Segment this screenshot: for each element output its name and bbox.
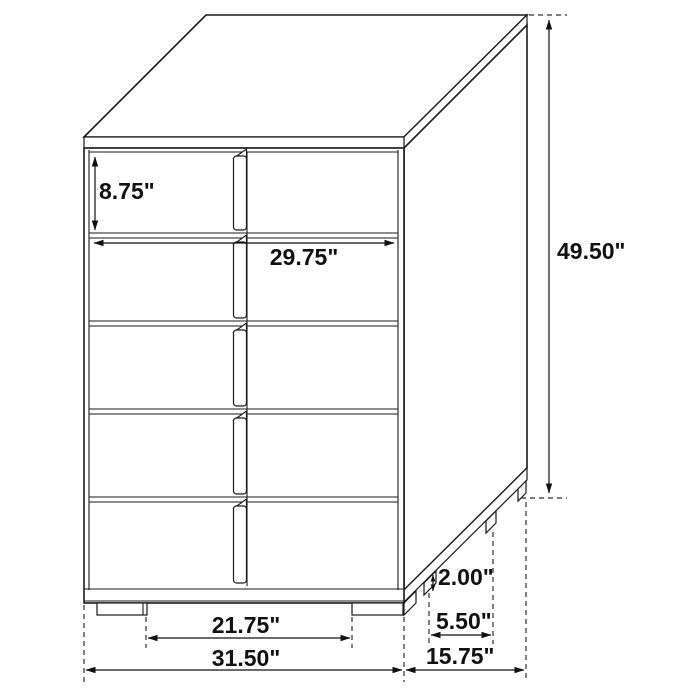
dim-label-overall-depth: 15.75" xyxy=(426,645,494,668)
drawer-handle-row1 xyxy=(234,149,247,230)
drawer-handle-row4 xyxy=(234,411,247,494)
cabinet-top-edge-front xyxy=(84,137,404,148)
drawer-handle-row5 xyxy=(234,499,247,583)
dim-label-leg-height: 2.00" xyxy=(438,566,494,589)
dim-label-drawer-height: 8.75" xyxy=(99,180,155,203)
dim-label-front-leg-spacing: 21.75" xyxy=(212,614,280,637)
cabinet-body xyxy=(84,15,527,615)
dimension-diagram: 8.75" 29.75" 49.50" 2.00" 5.50" 21.75" 3… xyxy=(0,0,700,700)
leg-front-right xyxy=(352,603,403,615)
leg-front-left xyxy=(97,603,147,615)
chest-line-drawing xyxy=(0,0,700,700)
dim-label-overall-height: 49.50" xyxy=(557,240,625,263)
dim-label-side-leg-spacing: 5.50" xyxy=(436,610,492,633)
dim-label-overall-width: 31.50" xyxy=(212,647,280,670)
dim-label-drawer-width: 29.75" xyxy=(270,246,338,269)
drawer-handles xyxy=(234,149,247,583)
drawer-handle-row2 xyxy=(234,235,247,318)
drawer-handle-row3 xyxy=(234,323,247,406)
